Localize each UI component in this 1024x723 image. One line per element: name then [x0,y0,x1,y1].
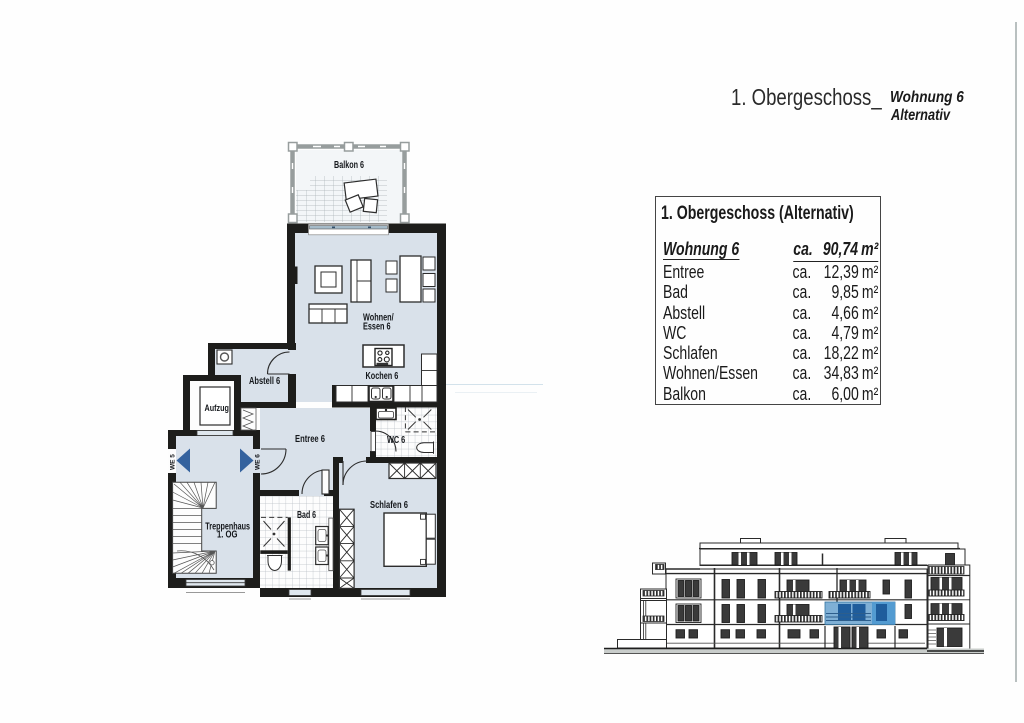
svg-text:WE 6: WE 6 [255,454,262,470]
svg-text:Essen 6: Essen 6 [363,320,391,331]
svg-text:1. OG: 1. OG [217,529,238,540]
svg-text:Balkon 6: Balkon 6 [334,159,364,170]
svg-text:Bad 6: Bad 6 [297,509,316,521]
svg-text:Schlafen 6: Schlafen 6 [370,499,408,510]
svg-text:WC 6: WC 6 [387,434,405,445]
svg-text:Kochen 6: Kochen 6 [366,370,399,381]
svg-text:Entree 6: Entree 6 [295,433,325,444]
svg-text:WE 5: WE 5 [170,454,177,470]
svg-text:Abstell 6: Abstell 6 [249,375,280,386]
svg-text:Aufzug: Aufzug [205,402,229,413]
